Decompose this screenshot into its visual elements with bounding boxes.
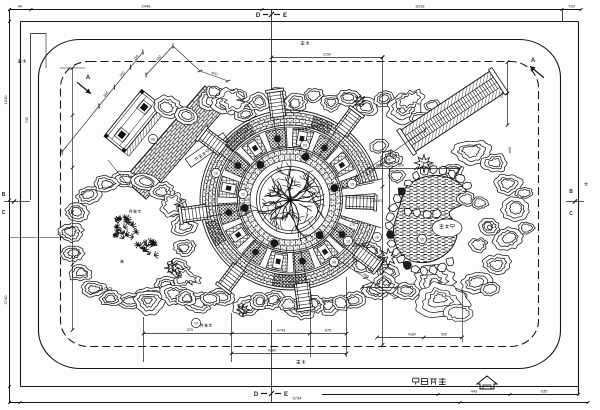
- svg-text:875: 875: [325, 329, 331, 333]
- svg-text:10: 10: [194, 322, 198, 326]
- svg-text:E: E: [283, 13, 287, 19]
- svg-text:600: 600: [508, 147, 512, 153]
- svg-text:375: 375: [187, 328, 193, 332]
- svg-text:D: D: [256, 13, 261, 19]
- svg-text:740: 740: [25, 117, 29, 123]
- svg-text:12: 12: [241, 193, 245, 197]
- svg-text:635: 635: [541, 389, 548, 394]
- svg-text:2740: 2740: [3, 295, 8, 305]
- svg-text:4180: 4180: [408, 333, 416, 337]
- svg-text:B: B: [2, 192, 6, 198]
- svg-text:(15x40): (15x40): [371, 199, 383, 203]
- svg-text:2448: 2448: [142, 4, 152, 9]
- svg-text:10: 10: [214, 172, 218, 176]
- svg-text:D: D: [254, 392, 259, 398]
- svg-text:443: 443: [471, 389, 478, 394]
- svg-text:275: 275: [500, 92, 504, 98]
- svg-text:08: 08: [151, 138, 155, 142]
- svg-text:170: 170: [349, 223, 355, 227]
- svg-text:A: A: [86, 75, 91, 81]
- svg-text:800: 800: [398, 164, 404, 168]
- svg-text:4743: 4743: [277, 329, 285, 333]
- svg-text:05: 05: [420, 238, 424, 242]
- svg-text:8318: 8318: [416, 4, 426, 9]
- svg-text:500: 500: [441, 333, 447, 337]
- svg-text:15: 15: [350, 183, 354, 187]
- svg-text:09: 09: [303, 144, 307, 148]
- svg-text:500: 500: [427, 164, 433, 168]
- svg-text:10: 10: [346, 240, 350, 244]
- svg-text:06: 06: [332, 261, 336, 265]
- svg-text:C: C: [2, 210, 6, 216]
- svg-text:20: 20: [375, 236, 379, 240]
- svg-text:A: A: [531, 58, 536, 64]
- svg-text:1540: 1540: [3, 95, 8, 105]
- svg-text:C: C: [569, 211, 573, 217]
- svg-text:2150: 2150: [323, 53, 331, 57]
- svg-text:5734: 5734: [293, 396, 303, 401]
- svg-text:40: 40: [18, 4, 23, 9]
- svg-text:241: 241: [57, 232, 63, 236]
- svg-text:750: 750: [568, 4, 575, 9]
- svg-text:B: B: [569, 189, 573, 195]
- svg-text:4180: 4180: [268, 349, 276, 353]
- svg-text:E: E: [284, 392, 288, 398]
